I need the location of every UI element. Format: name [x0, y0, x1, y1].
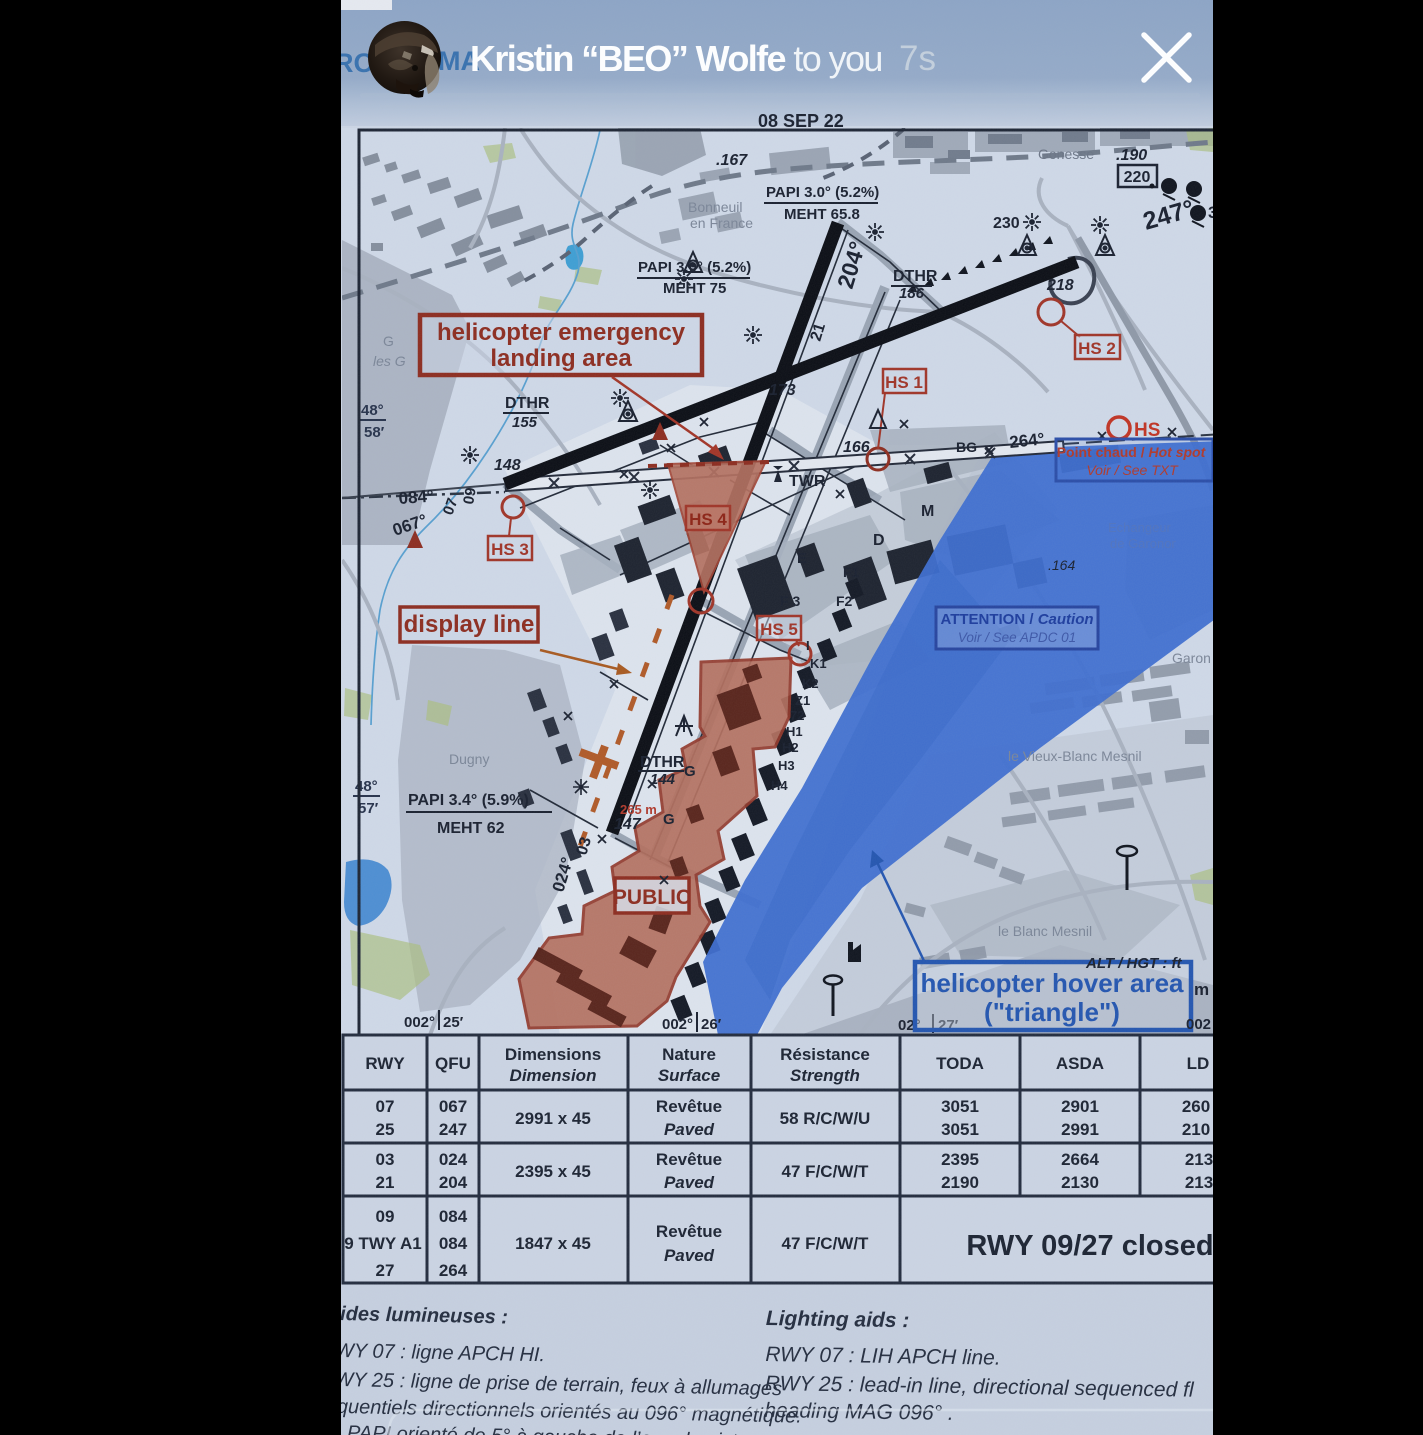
svg-text:7s: 7s: [899, 39, 936, 78]
svg-text:Kristin “BEO” Wolfe to you: Kristin “BEO” Wolfe to you: [470, 38, 882, 79]
